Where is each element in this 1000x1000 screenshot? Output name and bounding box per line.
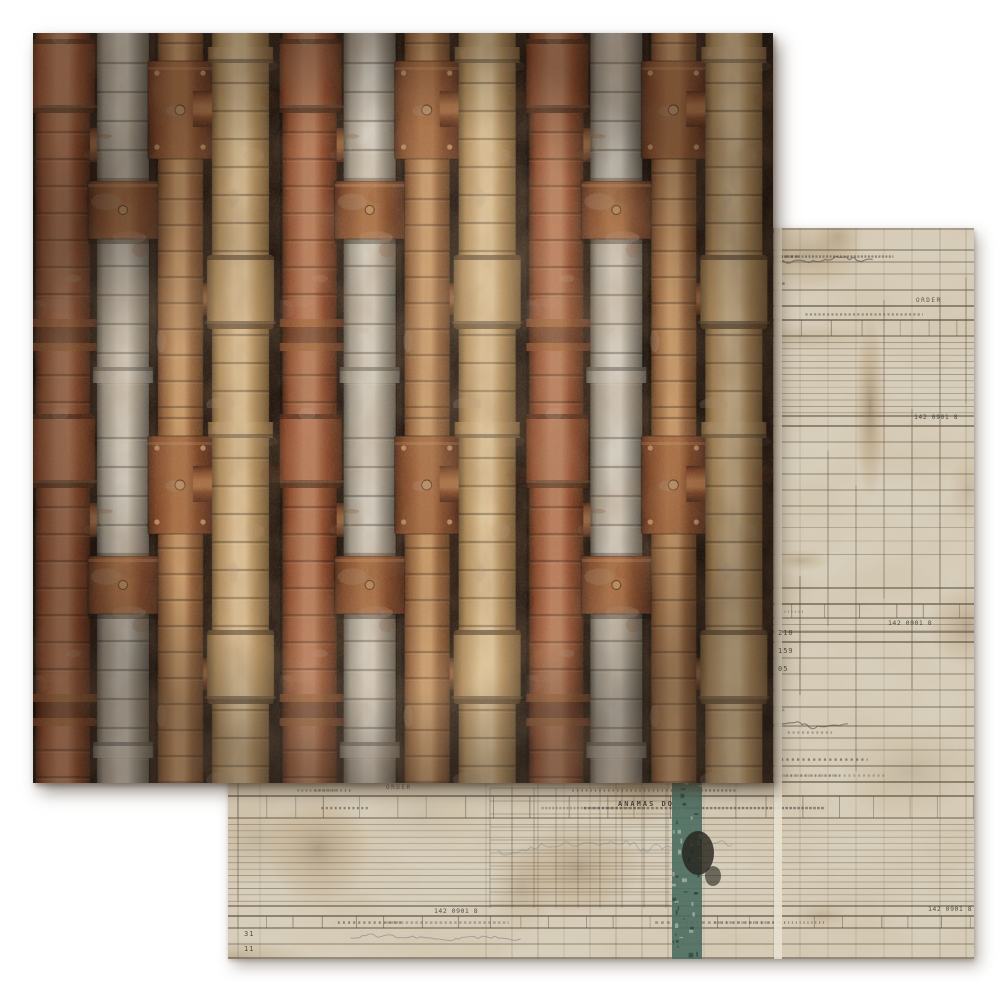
ledger-stamp-bottom-1: 142 0901 8 (434, 908, 478, 915)
ledger-row-number-right-1: 210 (778, 630, 794, 637)
ledger-stamp-bottom-2: 142 0901 8 (928, 906, 972, 913)
ledger-order-word-bottom: ORDER (386, 785, 412, 791)
front-sheet-pipes (33, 33, 773, 783)
ledger-station-label: ANAMAS DO (618, 801, 674, 808)
ledger-stamp-right: 142 0901 8 (914, 414, 958, 421)
ledger-row-number-bottom-1: 31 (244, 931, 254, 938)
pipes-pattern-art (33, 33, 773, 783)
ledger-stamp-right-2: 142 0901 8 (888, 620, 932, 627)
ledger-row-number-right-3: 05 (778, 666, 788, 673)
ledger-row-number-right-2: 159 (778, 648, 794, 655)
product-photo: ORDER 142 0901 8 210 159 05 142 0901 8 O… (0, 0, 1000, 1000)
ledger-row-number-bottom-2: 11 (244, 946, 254, 953)
ledger-order-word-right: ORDER (916, 298, 942, 304)
